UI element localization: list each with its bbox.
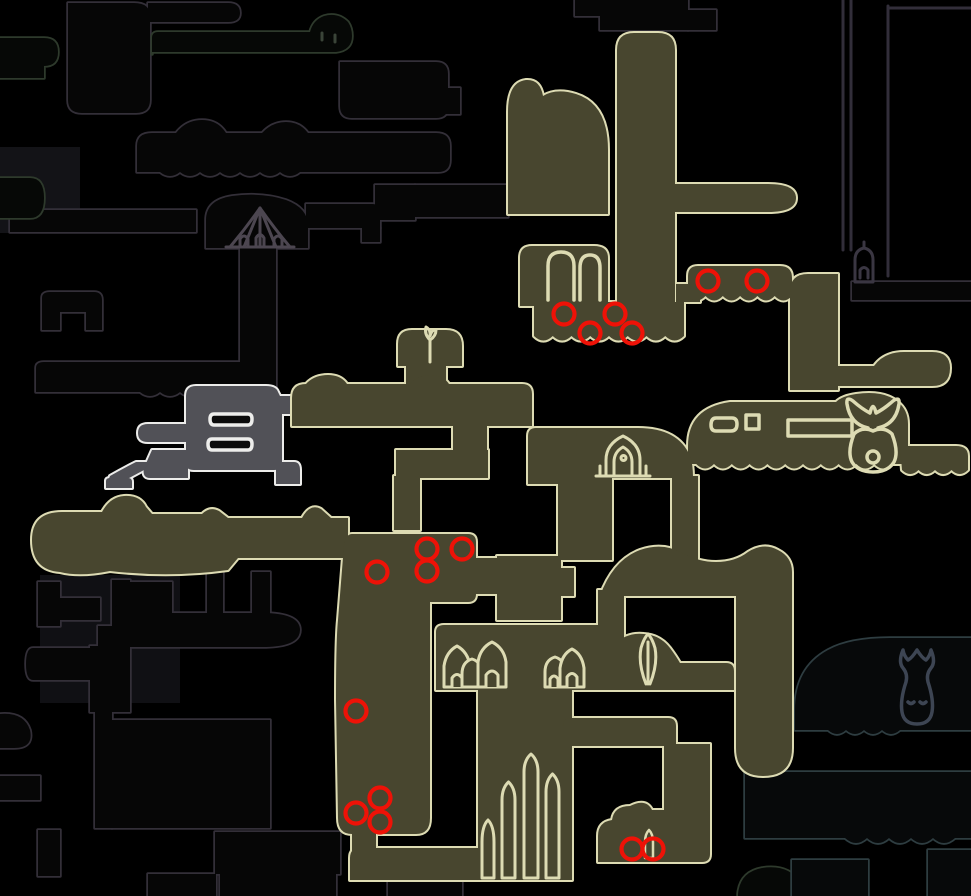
unexplored-rooms-gray-room (340, 62, 448, 118)
unexplored-rooms-gray-room (26, 648, 90, 680)
unexplored-rooms-gray-room (215, 832, 340, 874)
unexplored-rooms-gray-room (0, 776, 40, 800)
current-room-white-room (186, 386, 294, 470)
unexplored-rooms-gray-room (38, 582, 60, 626)
spire-icons (502, 782, 515, 878)
explored-rooms-room (598, 590, 624, 662)
spire-icons (482, 820, 494, 878)
unexplored-rooms-gray-room (600, 0, 688, 30)
world-map-canvas[interactable] (0, 0, 971, 896)
unexplored-rooms-teal-room (792, 860, 868, 896)
explored-rooms-room (396, 450, 488, 478)
explored-rooms-room (900, 446, 968, 474)
gray-room-window-icons (210, 414, 252, 425)
hollow-knight-map-screen (0, 0, 971, 896)
unexplored-rooms-gray-room (306, 204, 380, 228)
explored-rooms-room (672, 476, 698, 560)
current-room-white-room (138, 424, 190, 442)
unexplored-rooms-gray-room (362, 228, 380, 242)
spire-icons (546, 774, 559, 878)
unexplored-rooms-gray-room (388, 882, 462, 896)
explored-rooms-room (497, 556, 561, 620)
unexplored-rooms-teal-room (928, 850, 971, 896)
unexplored-rooms-gray-room (415, 185, 508, 217)
explored-rooms-room (672, 184, 796, 212)
explored-rooms-room (563, 718, 676, 746)
current-room-white-room (144, 450, 188, 478)
unexplored-rooms-gray-room (575, 0, 600, 16)
unexplored-rooms-gray-room (112, 720, 270, 828)
unexplored-rooms-gray-room (220, 872, 336, 896)
current-room-white-room (276, 462, 300, 484)
unexplored-rooms-gray-room (852, 282, 971, 300)
explored-rooms-room (453, 424, 487, 454)
explored-rooms-room (562, 462, 578, 478)
current-room-white-room (106, 478, 132, 488)
explored-rooms-room (556, 568, 574, 596)
gray-room-window-icons (208, 439, 252, 450)
unexplored-rooms-gray-room (68, 3, 150, 113)
unexplored-rooms-gray-room (148, 874, 216, 896)
unexplored-rooms-gray-room (95, 694, 112, 828)
explored-rooms-room (617, 33, 675, 306)
explored-rooms-room (664, 744, 710, 820)
unexplored-rooms-gray-room (375, 185, 415, 220)
unexplored-rooms-gray-room (148, 3, 240, 22)
unexplored-rooms-gray-room (436, 88, 460, 114)
unexplored-rooms-gray-room (38, 830, 60, 876)
spire-icons (524, 754, 538, 878)
unexplored-rooms-green-room (0, 178, 44, 218)
unexplored-rooms-gray-room (207, 572, 223, 614)
unexplored-rooms-teal-room (845, 826, 955, 843)
explored-rooms-room (394, 476, 420, 530)
explored-rooms-room (558, 480, 612, 560)
unexplored-rooms-gray-room (688, 10, 716, 30)
unexplored-rooms-gray-room (60, 598, 100, 620)
unexplored-rooms-gray-room (240, 246, 276, 392)
explored-rooms-room (736, 594, 792, 776)
